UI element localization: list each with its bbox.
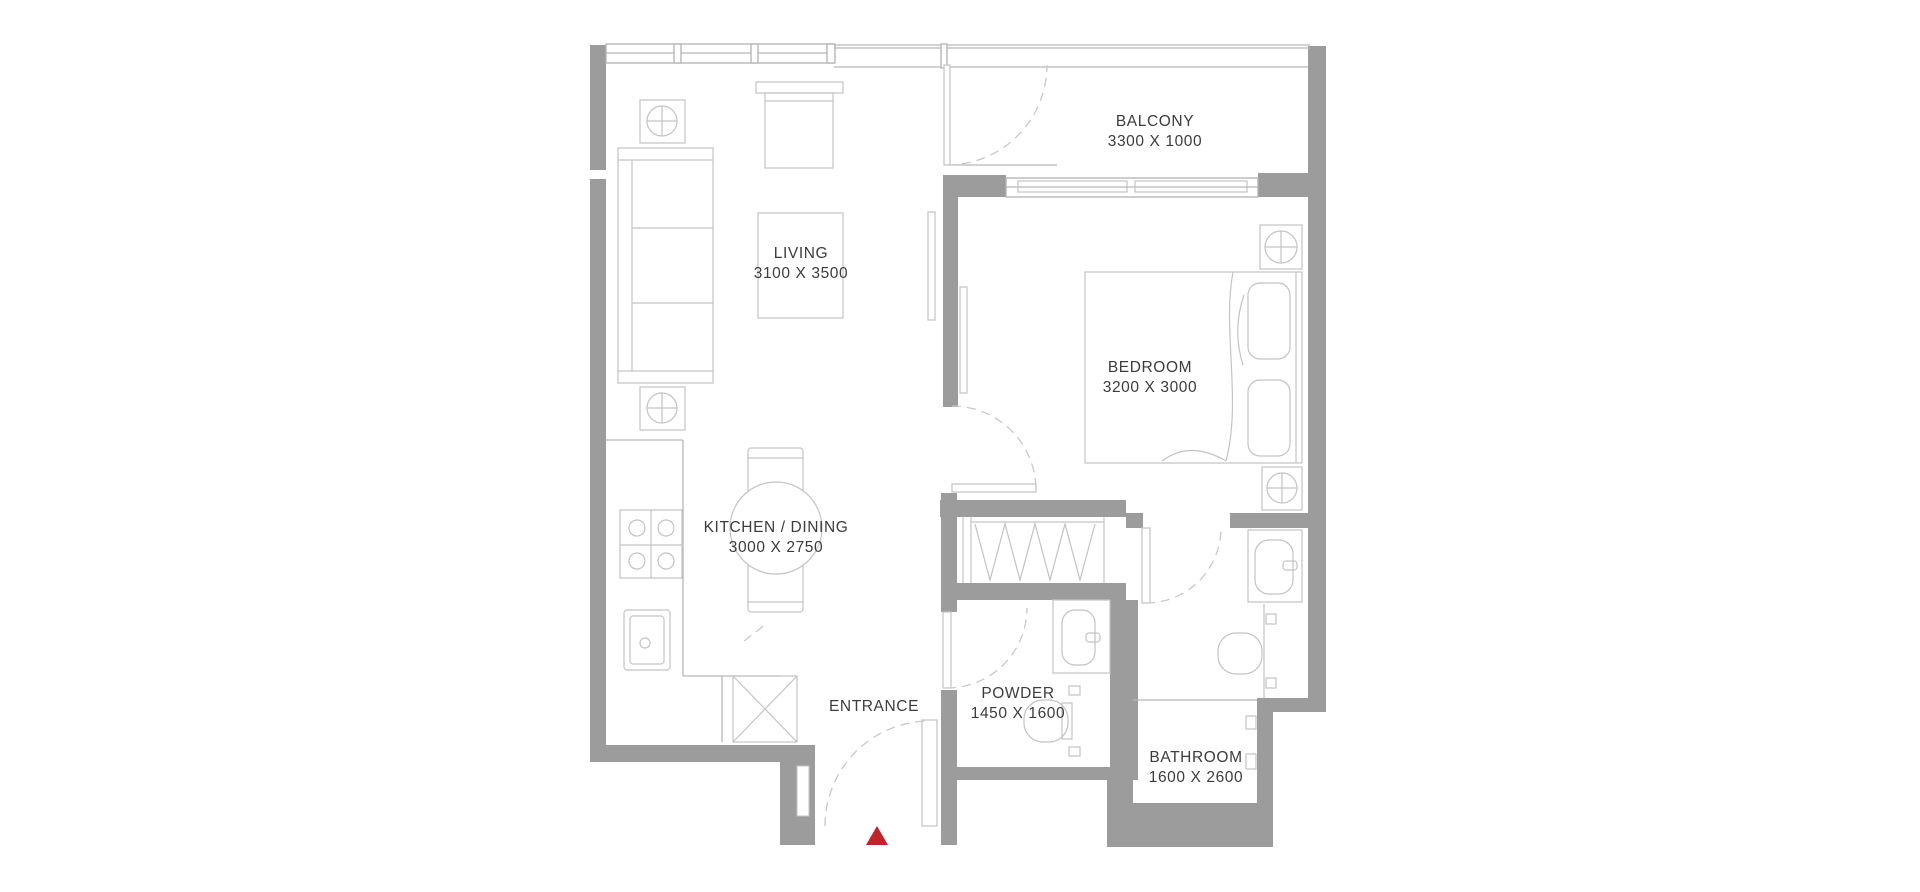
side-table-lamp-top [640, 100, 685, 143]
label-bedroom: BEDROOM [1108, 359, 1192, 376]
balcony-door [944, 65, 1047, 165]
bedroom-window [1006, 178, 1258, 197]
floor-plan: BALCONY 3300 X 1000 LIVING 3100 X 3500 B… [0, 0, 1920, 892]
entrance-door [825, 720, 937, 826]
bathroom-toilet [1218, 604, 1276, 698]
utility-box [722, 624, 797, 742]
balcony-railing [834, 44, 1310, 165]
label-living-dim: 3100 X 3500 [754, 265, 849, 282]
living-window [606, 44, 835, 63]
kitchen-sink [624, 610, 670, 670]
powder-door [943, 608, 1027, 688]
stove [620, 510, 682, 578]
label-kitchen-dining-dim: 3000 X 2750 [729, 539, 824, 556]
label-entrance: ENTRANCE [829, 698, 919, 715]
bathroom-door [1142, 528, 1221, 603]
bathroom-sink [1248, 530, 1302, 602]
bedroom-door [952, 406, 1036, 492]
side-table-lamp-bottom [640, 387, 685, 430]
label-living: LIVING [774, 245, 828, 262]
label-bedroom-dim: 3200 X 3000 [1103, 379, 1198, 396]
label-balcony-dim: 3300 X 1000 [1108, 133, 1203, 150]
tv-unit [756, 82, 843, 168]
label-bathroom-dim: 1600 X 2600 [1149, 769, 1244, 786]
label-kitchen-dining: KITCHEN / DINING [704, 519, 849, 536]
nightstand-lamp-bottom [1262, 467, 1302, 510]
label-balcony: BALCONY [1116, 113, 1194, 130]
label-bathroom: BATHROOM [1149, 749, 1242, 766]
label-powder-dim: 1450 X 1600 [971, 705, 1066, 722]
entrance-marker [866, 826, 888, 845]
sofa [618, 148, 713, 383]
label-powder: POWDER [981, 685, 1054, 702]
wardrobe [963, 517, 1104, 583]
nightstand-lamp-top [1260, 225, 1302, 269]
powder-sink [1053, 600, 1110, 673]
floor-plan-canvas: BALCONY 3300 X 1000 LIVING 3100 X 3500 B… [0, 0, 1920, 892]
